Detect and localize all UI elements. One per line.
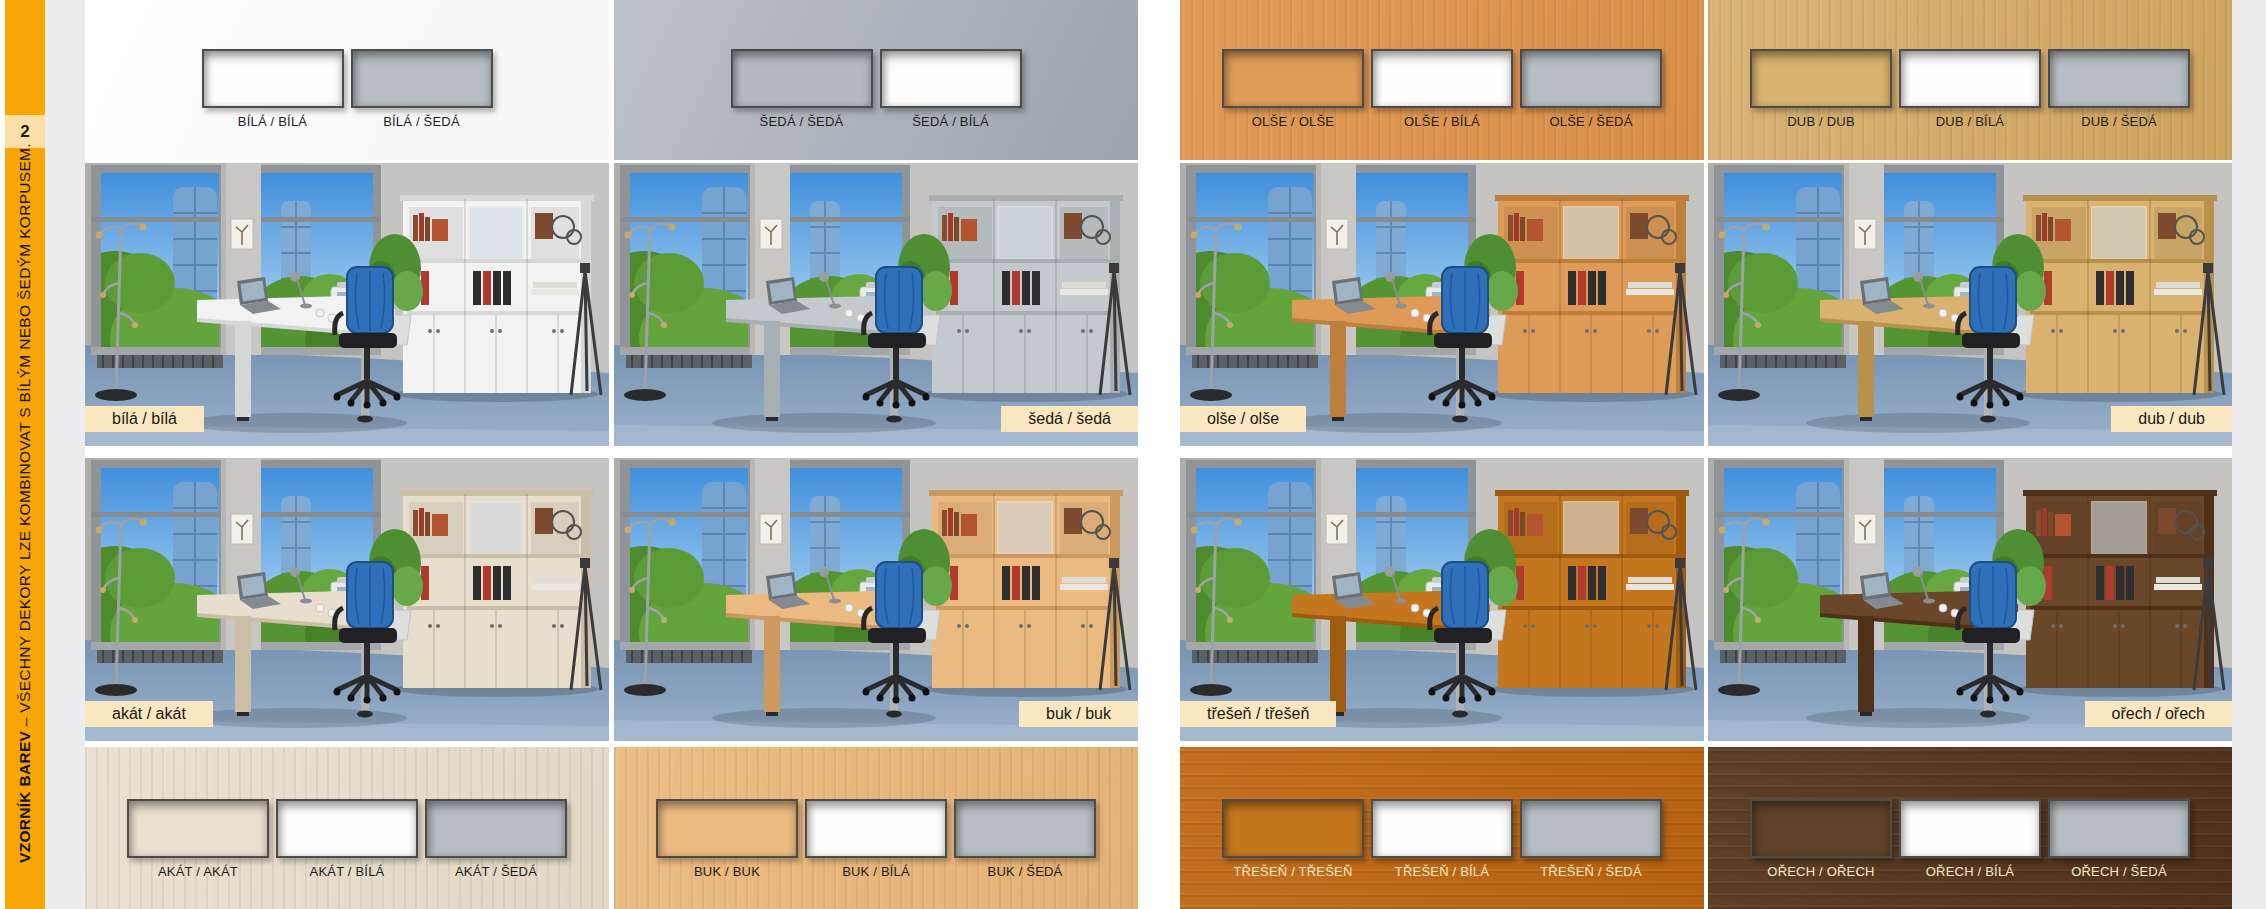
decor-swatch-label: OLŠE / ŠEDÁ [1520,114,1662,129]
decor-swatch-label: TŘEŠEŇ / BÍLÁ [1371,864,1513,879]
room-decor-tag: dub / dub [2111,406,2232,432]
decor-column-bila-akat: BÍLÁ / BÍLÁ BÍLÁ / ŠEDÁ bílá / b [85,0,609,909]
decor-swatch-item: BUK / BUK [656,799,798,879]
decor-swatch [805,799,947,858]
swatch-panel-bottom: OŘECH / OŘECH OŘECH / BÍLÁ OŘECH / ŠEDÁ [1708,747,2232,909]
left-gutter [45,0,85,909]
decor-swatch [656,799,798,858]
decor-swatch-item: TŘEŠEŇ / BÍLÁ [1371,799,1513,879]
room-photo: olše / olše [1180,163,1704,446]
decor-swatch-label: OLŠE / OLŠE [1222,114,1364,129]
sidebar-vertical-title: VZORNÍK BAREV – VŠECHNY DEKORY LZE KOMBI… [5,148,45,909]
decor-swatch-item: TŘEŠEŇ / TŘEŠEŇ [1222,799,1364,879]
swatch-row: BUK / BUK BUK / BÍLÁ BUK / ŠEDÁ [614,799,1138,879]
room-decor-tag: bílá / bílá [85,406,204,432]
decor-swatch-item: OŘECH / BÍLÁ [1899,799,2041,879]
decor-column-seda-buk: ŠEDÁ / ŠEDÁ ŠEDÁ / BÍLÁ šedá / š [614,0,1138,909]
decor-swatch-label: AKÁT / AKÁT [127,864,269,879]
decor-swatch-label: OLŠE / BÍLÁ [1371,114,1513,129]
decor-swatch [880,49,1022,108]
decor-swatch-label: DUB / BÍLÁ [1899,114,2041,129]
swatch-panel-top: ŠEDÁ / ŠEDÁ ŠEDÁ / BÍLÁ [614,0,1138,160]
decor-swatch-label: BUK / BÍLÁ [805,864,947,879]
office-room-illustration [1180,458,1704,741]
decor-swatch [1371,49,1513,108]
decor-swatch-label: AKÁT / BÍLÁ [276,864,418,879]
decor-swatch-item: AKÁT / AKÁT [127,799,269,879]
swatch-row: OLŠE / OLŠE OLŠE / BÍLÁ OLŠE / ŠEDÁ [1180,49,1704,129]
room-photo: šedá / šedá [614,163,1138,446]
decor-swatch-label: DUB / ŠEDÁ [2048,114,2190,129]
office-room-illustration [1708,163,2232,446]
decor-swatch [1520,799,1662,858]
decor-swatch-item: ŠEDÁ / BÍLÁ [880,49,1022,129]
decor-swatch [954,799,1096,858]
decor-swatch-item: OLŠE / ŠEDÁ [1520,49,1662,129]
swatch-row: DUB / DUB DUB / BÍLÁ DUB / ŠEDÁ [1708,49,2232,129]
decor-swatch-item: BUK / BÍLÁ [805,799,947,879]
decor-swatch-label: BUK / ŠEDÁ [954,864,1096,879]
decor-swatch [1750,799,1892,858]
decor-swatch [1750,49,1892,108]
decor-swatch [1371,799,1513,858]
office-room-illustration [614,163,1138,446]
decor-swatch-label: BÍLÁ / ŠEDÁ [351,114,493,129]
sidebar-title-rest: – VŠECHNY DEKORY LZE KOMBINOVAT S BÍLÝM … [16,143,33,731]
decor-swatch-item: ŠEDÁ / ŠEDÁ [731,49,873,129]
decor-swatch-item: OŘECH / OŘECH [1750,799,1892,879]
swatch-panel-top: OLŠE / OLŠE OLŠE / BÍLÁ OLŠE / ŠEDÁ [1180,0,1704,160]
decor-swatch-item: OLŠE / OLŠE [1222,49,1364,129]
decor-swatch-item: BUK / ŠEDÁ [954,799,1096,879]
decor-swatch-item: AKÁT / BÍLÁ [276,799,418,879]
decor-swatch-label: BÍLÁ / BÍLÁ [202,114,344,129]
room-photo: ořech / ořech [1708,458,2232,741]
decor-swatch [1899,49,2041,108]
room-decor-tag: třešeň / třešeň [1180,701,1336,727]
decor-swatch-label: TŘEŠEŇ / TŘEŠEŇ [1222,864,1364,879]
swatch-row: AKÁT / AKÁT AKÁT / BÍLÁ AKÁT / ŠEDÁ [85,799,609,879]
decor-swatch-label: DUB / DUB [1750,114,1892,129]
room-decor-tag: buk / buk [1019,701,1138,727]
room-photo: akát / akát [85,458,609,741]
decor-swatch [202,49,344,108]
office-room-illustration [85,163,609,446]
decor-swatch-label: TŘEŠEŇ / ŠEDÁ [1520,864,1662,879]
decor-swatch [2048,49,2190,108]
decor-swatch-label: OŘECH / BÍLÁ [1899,864,2041,879]
decor-swatch-label: AKÁT / ŠEDÁ [425,864,567,879]
room-decor-tag: akát / akát [85,701,213,727]
decor-swatch [425,799,567,858]
office-room-illustration [614,458,1138,741]
decor-swatch-item: TŘEŠEŇ / ŠEDÁ [1520,799,1662,879]
decor-swatch [1899,799,2041,858]
decor-swatch-item: DUB / DUB [1750,49,1892,129]
decor-swatch-item: DUB / BÍLÁ [1899,49,2041,129]
decor-swatch-item: AKÁT / ŠEDÁ [425,799,567,879]
decor-swatch-item: BÍLÁ / BÍLÁ [202,49,344,129]
decor-swatch-item: BÍLÁ / ŠEDÁ [351,49,493,129]
swatch-panel-top: DUB / DUB DUB / BÍLÁ DUB / ŠEDÁ [1708,0,2232,160]
swatch-panel-bottom: AKÁT / AKÁT AKÁT / BÍLÁ AKÁT / ŠEDÁ [85,747,609,909]
decor-swatch [276,799,418,858]
swatch-panel-top: BÍLÁ / BÍLÁ BÍLÁ / ŠEDÁ [85,0,609,160]
decor-swatch-label: BUK / BUK [656,864,798,879]
room-photo: buk / buk [614,458,1138,741]
decor-swatch [2048,799,2190,858]
right-gutter [2232,0,2266,909]
swatch-panel-bottom: BUK / BUK BUK / BÍLÁ BUK / ŠEDÁ [614,747,1138,909]
swatch-panel-bottom: TŘEŠEŇ / TŘEŠEŇ TŘEŠEŇ / BÍLÁ TŘEŠEŇ / Š… [1180,747,1704,909]
decor-swatch-label: OŘECH / ŠEDÁ [2048,864,2190,879]
office-room-illustration [1180,163,1704,446]
swatch-row: OŘECH / OŘECH OŘECH / BÍLÁ OŘECH / ŠEDÁ [1708,799,2232,879]
decor-swatch-label: ŠEDÁ / ŠEDÁ [731,114,873,129]
room-decor-tag: ořech / ořech [2085,701,2232,727]
room-decor-tag: olše / olše [1180,406,1306,432]
decor-swatch [1222,799,1364,858]
room-decor-tag: šedá / šedá [1001,406,1138,432]
decor-swatch-label: ŠEDÁ / BÍLÁ [880,114,1022,129]
swatch-row: TŘEŠEŇ / TŘEŠEŇ TŘEŠEŇ / BÍLÁ TŘEŠEŇ / Š… [1180,799,1704,879]
sidebar: 2 VZORNÍK BAREV – VŠECHNY DEKORY LZE KOM… [5,0,45,909]
decor-swatch [127,799,269,858]
decor-swatch-item: DUB / ŠEDÁ [2048,49,2190,129]
office-room-illustration [85,458,609,741]
office-room-illustration [1708,458,2232,741]
swatch-row: BÍLÁ / BÍLÁ BÍLÁ / ŠEDÁ [85,49,609,129]
decor-swatch-item: OLŠE / BÍLÁ [1371,49,1513,129]
decor-swatch-item: OŘECH / ŠEDÁ [2048,799,2190,879]
swatch-row: ŠEDÁ / ŠEDÁ ŠEDÁ / BÍLÁ [614,49,1138,129]
sidebar-title-bold: VZORNÍK BAREV [16,731,33,863]
room-photo: třešeň / třešeň [1180,458,1704,741]
decor-column-olse-tresen: OLŠE / OLŠE OLŠE / BÍLÁ OLŠE / ŠEDÁ [1180,0,1704,909]
room-photo: bílá / bílá [85,163,609,446]
decor-swatch-label: OŘECH / OŘECH [1750,864,1892,879]
decor-swatch [1520,49,1662,108]
decor-swatch [731,49,873,108]
decor-column-dub-orech: DUB / DUB DUB / BÍLÁ DUB / ŠEDÁ [1708,0,2232,909]
decor-swatch [1222,49,1364,108]
room-photo: dub / dub [1708,163,2232,446]
decor-swatch [351,49,493,108]
